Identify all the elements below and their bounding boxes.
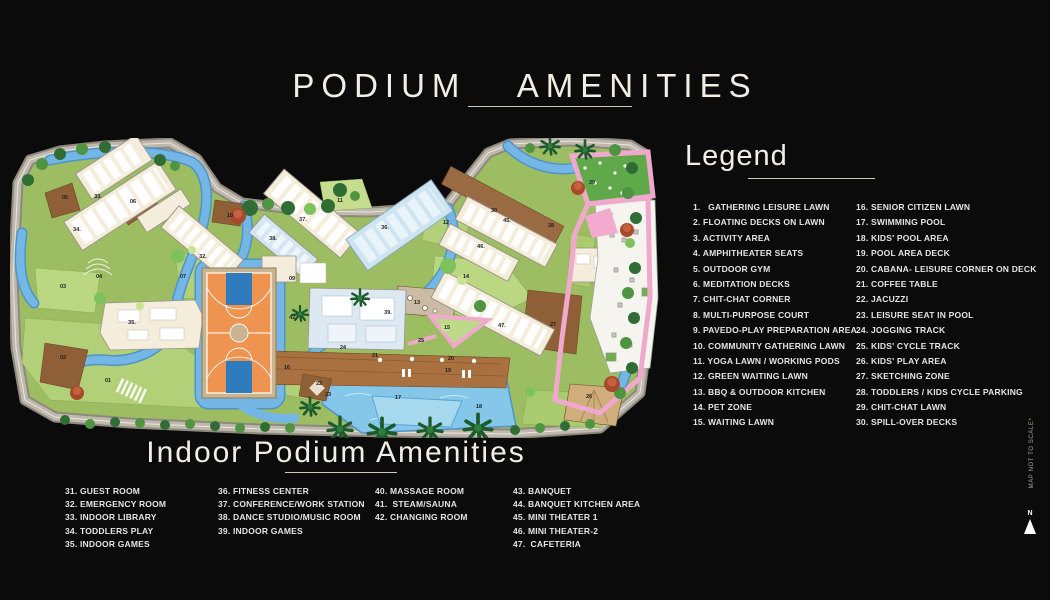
legend-item: 26. KIDS' PLAY AREA bbox=[856, 354, 1036, 369]
indoor-item: 42. CHANGING ROOM bbox=[375, 511, 468, 524]
indoor-heading: Indoor Podium Amenities bbox=[0, 436, 672, 470]
legend-item: 10. COMMUNITY GATHERING LAWN bbox=[693, 339, 858, 354]
legend-item: 6. MEDITATION DECKS bbox=[693, 277, 858, 292]
indoor-column-2: 36. FITNESS CENTER37. CONFERENCE/WORK ST… bbox=[218, 485, 365, 538]
legend-underline bbox=[748, 178, 875, 179]
legend-item: 8. MULTI-PURPOSE COURT bbox=[693, 308, 858, 323]
legend-item: 25. KIDS' CYCLE TRACK bbox=[856, 339, 1036, 354]
legend-item: 27. SKETCHING ZONE bbox=[856, 369, 1036, 384]
indoor-item: 45. MINI THEATER 1 bbox=[513, 511, 640, 524]
basketball-court bbox=[202, 268, 276, 398]
indoor-column-4: 43. BANQUET44. BANQUET KITCHEN AREA45. M… bbox=[513, 485, 640, 551]
legend-item: 13. BBQ & OUTDOOR KITCHEN bbox=[693, 385, 858, 400]
indoor-underline bbox=[285, 472, 397, 473]
indoor-item: 34. TODDLERS PLAY bbox=[65, 525, 166, 538]
legend-item: 3. ACTIVITY AREA bbox=[693, 231, 858, 246]
legend-item: 29. CHIT-CHAT LAWN bbox=[856, 400, 1036, 415]
chit-chat-lawn bbox=[572, 152, 653, 204]
indoor-item: 32. EMERGENCY ROOM bbox=[65, 498, 166, 511]
indoor-item: 38. DANCE STUDIO/MUSIC ROOM bbox=[218, 511, 365, 524]
indoor-item: 43. BANQUET bbox=[513, 485, 640, 498]
indoor-column-1: 31. GUEST ROOM32. EMERGENCY ROOM33. INDO… bbox=[65, 485, 166, 551]
legend-item: 14. PET ZONE bbox=[693, 400, 858, 415]
legend-item: 28. TODDLERS / KIDS CYCLE PARKING bbox=[856, 385, 1036, 400]
north-compass: N bbox=[1020, 510, 1040, 534]
legend-item: 11. YOGA LAWN / WORKING PODS bbox=[693, 354, 858, 369]
indoor-item: 46. MINI THEATER-2 bbox=[513, 525, 640, 538]
legend-item: 24. JOGGING TRACK bbox=[856, 323, 1036, 338]
legend-item: 4. AMPHITHEATER SEATS bbox=[693, 246, 858, 261]
legend-item: 1. GATHERING LEISURE LAWN bbox=[693, 200, 858, 215]
legend-item: 30. SPILL-OVER DECKS bbox=[856, 415, 1036, 430]
indoor-item: 33. INDOOR LIBRARY bbox=[65, 511, 166, 524]
indoor-item: 47. CAFETERIA bbox=[513, 538, 640, 551]
legend-item: 5. OUTDOOR GYM bbox=[693, 262, 858, 277]
legend-item: 20. CABANA- LEISURE CORNER ON DECK bbox=[856, 262, 1036, 277]
legend-item: 22. JACUZZI bbox=[856, 292, 1036, 307]
north-label: N bbox=[1020, 510, 1040, 518]
legend-column-1: 1. GATHERING LEISURE LAWN2. FLOATING DEC… bbox=[693, 200, 858, 431]
legend-item: 16. SENIOR CITIZEN LAWN bbox=[856, 200, 1036, 215]
indoor-column-3: 40. MASSAGE ROOM41. STEAM/SAUNA42. CHANG… bbox=[375, 485, 468, 525]
legend-item: 9. PAVEDO-PLAY PREPARATION AREA bbox=[693, 323, 858, 338]
indoor-item: 44. BANQUET KITCHEN AREA bbox=[513, 498, 640, 511]
indoor-item: 40. MASSAGE ROOM bbox=[375, 485, 468, 498]
legend-item: 2. FLOATING DECKS ON LAWN bbox=[693, 215, 858, 230]
indoor-item: 41. STEAM/SAUNA bbox=[375, 498, 468, 511]
legend-item: 12. GREEN WAITING LAWN bbox=[693, 369, 858, 384]
legend-item: 17. SWIMMING POOL bbox=[856, 215, 1036, 230]
north-arrow-icon bbox=[1024, 519, 1036, 534]
page-title: PODIUM AMENITIES bbox=[0, 67, 1050, 105]
legend-column-2: 16. SENIOR CITIZEN LAWN17. SWIMMING POOL… bbox=[856, 200, 1036, 431]
indoor-item: 35. INDOOR GAMES bbox=[65, 538, 166, 551]
indoor-item: 31. GUEST ROOM bbox=[65, 485, 166, 498]
legend-item: 7. CHIT-CHAT CORNER bbox=[693, 292, 858, 307]
legend-item: 21. COFFEE TABLE bbox=[856, 277, 1036, 292]
legend-item: 23. LEISURE SEAT IN POOL bbox=[856, 308, 1036, 323]
site-map-graphic bbox=[10, 138, 660, 438]
site-map: 0102030405060709101112131415161718192021… bbox=[10, 138, 660, 438]
legend-item: 18. KIDS' POOL AREA bbox=[856, 231, 1036, 246]
legend-heading: Legend bbox=[685, 140, 788, 173]
indoor-item: 37. CONFERENCE/WORK STATION bbox=[218, 498, 365, 511]
map-scale-note: MAP NOT TO SCALE* bbox=[1029, 417, 1035, 489]
indoor-item: 36. FITNESS CENTER bbox=[218, 485, 365, 498]
legend-item: 19. POOL AREA DECK bbox=[856, 246, 1036, 261]
kids-pool bbox=[372, 396, 462, 427]
title-underline bbox=[468, 106, 632, 107]
page: PODIUM AMENITIES bbox=[0, 0, 1050, 600]
indoor-item: 39. INDOOR GAMES bbox=[218, 525, 365, 538]
legend-item: 15. WAITING LAWN bbox=[693, 415, 858, 430]
